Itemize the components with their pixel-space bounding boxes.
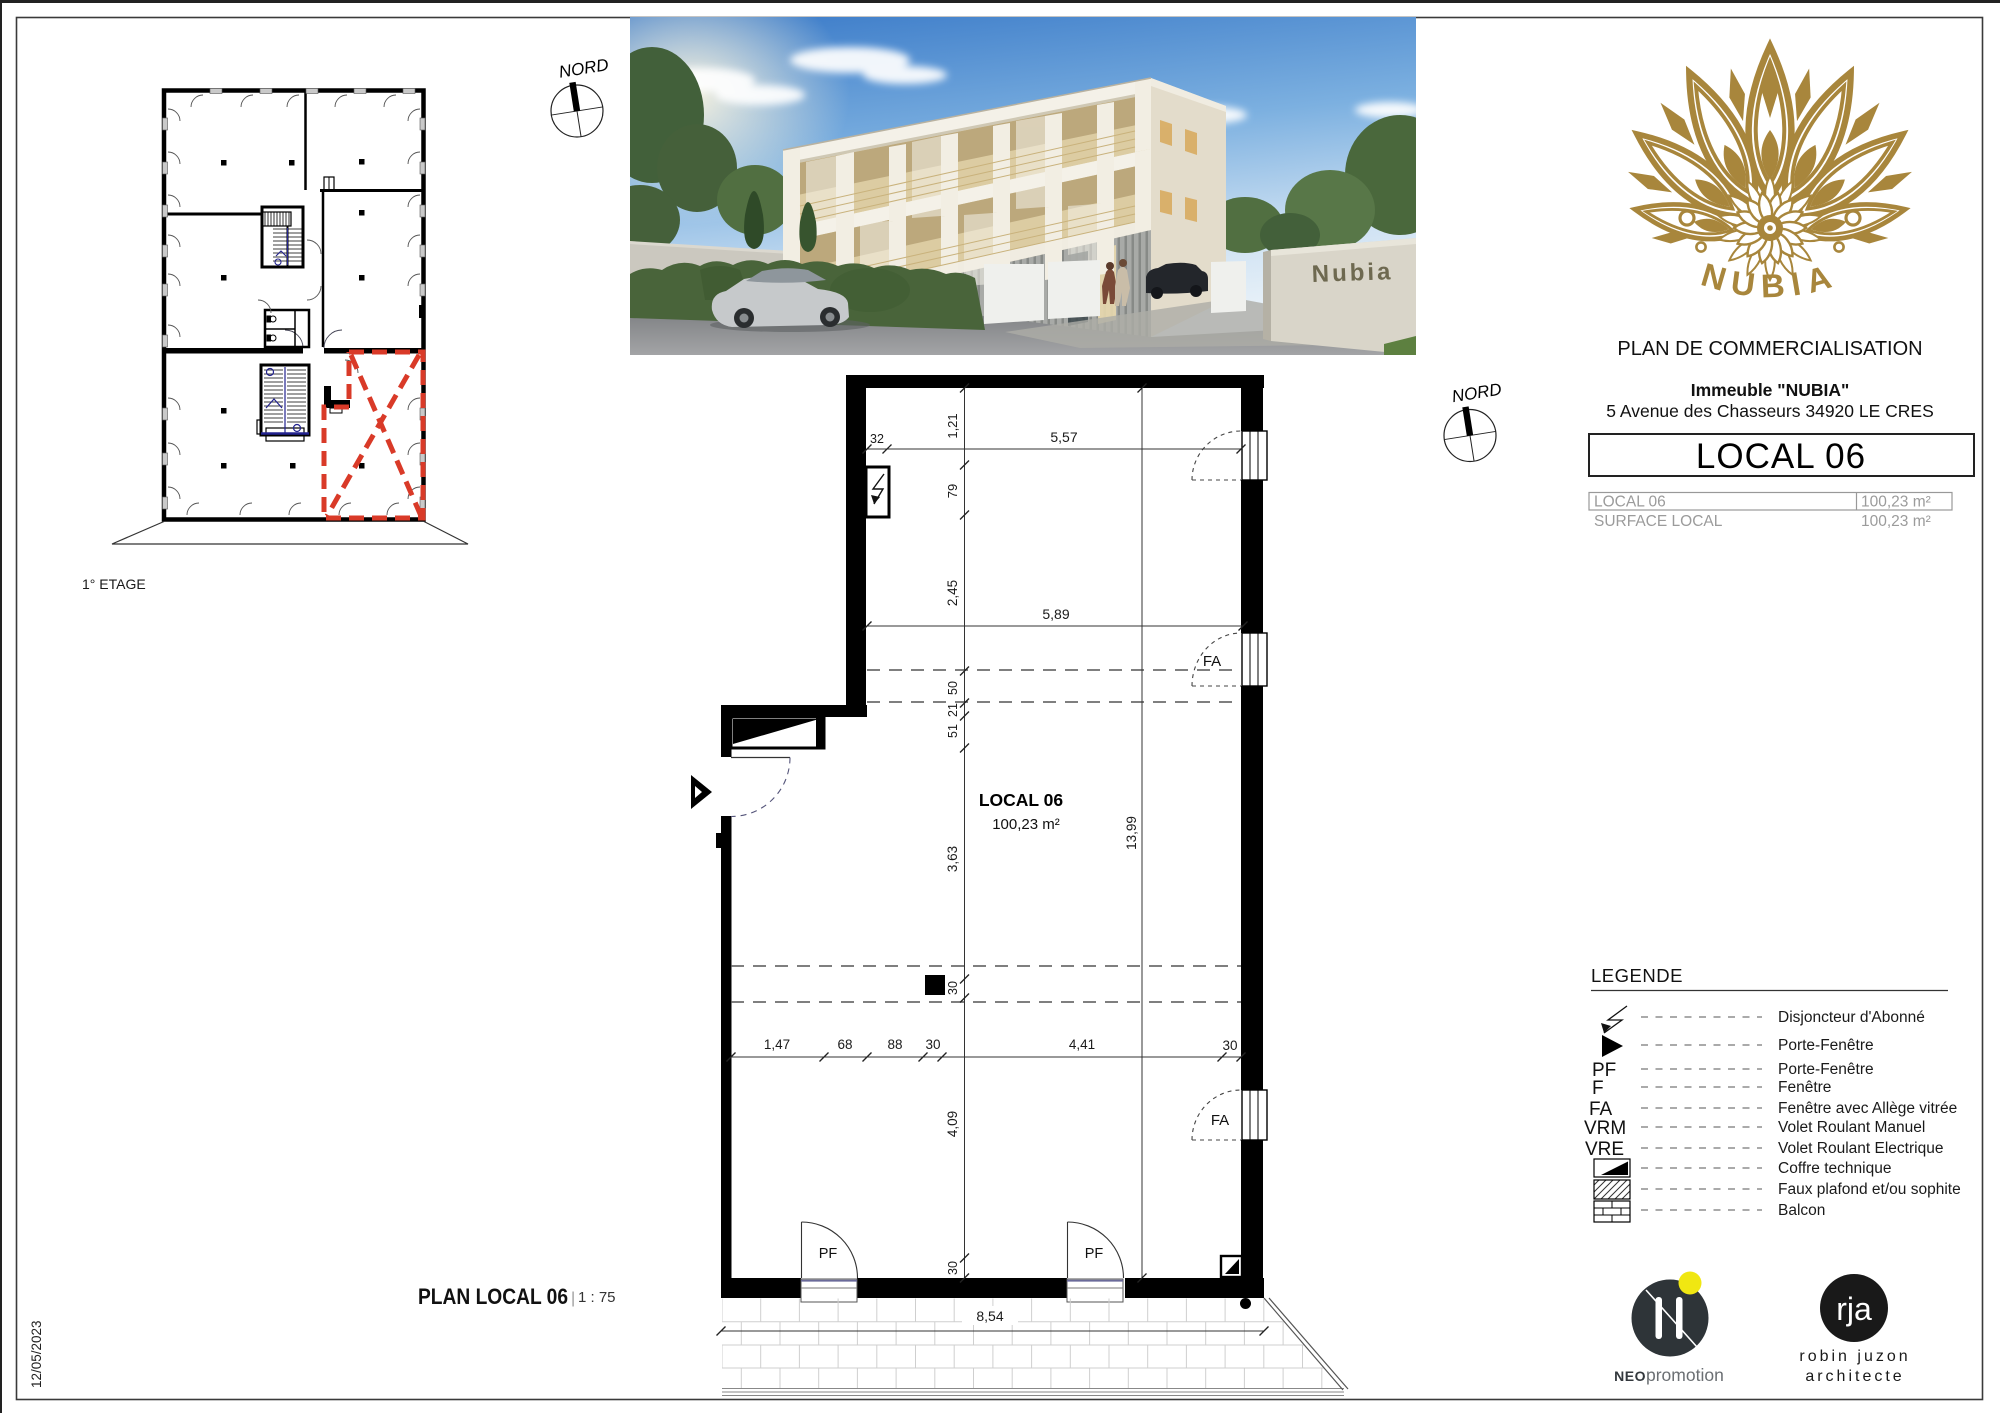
- svg-text:100,23 m²: 100,23 m²: [1861, 494, 1931, 511]
- svg-text:1° ETAGE: 1° ETAGE: [82, 576, 146, 592]
- svg-text:Nubia: Nubia: [1311, 258, 1394, 288]
- svg-text:8,54: 8,54: [976, 1308, 1003, 1324]
- svg-text:Coffre technique: Coffre technique: [1778, 1160, 1891, 1177]
- svg-text:5,89: 5,89: [1042, 606, 1069, 622]
- svg-text:Immeuble "NUBIA": Immeuble "NUBIA": [1691, 380, 1850, 400]
- svg-text:LOCAL 06: LOCAL 06: [1594, 494, 1666, 511]
- svg-text:30: 30: [946, 1261, 960, 1275]
- svg-text:50: 50: [946, 681, 960, 695]
- svg-text:13,99: 13,99: [1124, 816, 1139, 850]
- svg-text:Balcon: Balcon: [1778, 1202, 1825, 1219]
- svg-text:LOCAL 06: LOCAL 06: [979, 790, 1064, 810]
- svg-text:30: 30: [1222, 1038, 1237, 1053]
- svg-text:1 : 75: 1 : 75: [578, 1289, 616, 1306]
- svg-text:F: F: [1592, 1078, 1604, 1099]
- svg-text:PLAN DE COMMERCIALISATION: PLAN DE COMMERCIALISATION: [1617, 338, 1922, 360]
- svg-text:NORD: NORD: [558, 55, 610, 82]
- svg-text:LOCAL 06: LOCAL 06: [1696, 437, 1866, 476]
- svg-text:architecte: architecte: [1805, 1368, 1904, 1385]
- svg-text:NEOpromotion: NEOpromotion: [1614, 1365, 1724, 1385]
- svg-text:51: 51: [946, 724, 960, 738]
- svg-text:32: 32: [870, 432, 884, 446]
- svg-text:PF: PF: [1085, 1246, 1104, 1262]
- svg-text:FA: FA: [1589, 1099, 1613, 1120]
- svg-text:VRM: VRM: [1584, 1118, 1626, 1139]
- svg-text:2,45: 2,45: [945, 580, 960, 606]
- svg-text:1,21: 1,21: [945, 413, 960, 438]
- svg-text:PLAN LOCAL 06: PLAN LOCAL 06: [418, 1284, 568, 1309]
- svg-text:LEGENDE: LEGENDE: [1591, 965, 1683, 986]
- svg-text:PF: PF: [819, 1246, 838, 1262]
- svg-text:SURFACE LOCAL: SURFACE LOCAL: [1594, 513, 1723, 530]
- svg-text:rja: rja: [1836, 1291, 1872, 1327]
- svg-text:Disjoncteur d'Abonné: Disjoncteur d'Abonné: [1778, 1009, 1925, 1026]
- svg-text:68: 68: [837, 1037, 852, 1052]
- svg-text:21: 21: [946, 703, 960, 717]
- svg-text:Volet Roulant Electrique: Volet Roulant Electrique: [1778, 1140, 1943, 1157]
- svg-text:4,09: 4,09: [945, 1111, 960, 1137]
- svg-text:Fenêtre avec Allège vitrée: Fenêtre avec Allège vitrée: [1778, 1100, 1957, 1117]
- svg-text:VRE: VRE: [1585, 1139, 1624, 1160]
- svg-text:Porte-Fenêtre: Porte-Fenêtre: [1778, 1037, 1874, 1054]
- svg-text:88: 88: [887, 1037, 902, 1052]
- svg-text:5 Avenue des Chasseurs 34920 L: 5 Avenue des Chasseurs 34920 LE CRES: [1606, 401, 1934, 421]
- svg-text:Porte-Fenêtre: Porte-Fenêtre: [1778, 1061, 1874, 1078]
- svg-text:30: 30: [925, 1037, 940, 1052]
- svg-text:79: 79: [945, 484, 960, 498]
- svg-text:100,23 m²: 100,23 m²: [1861, 513, 1931, 530]
- svg-text:100,23 m²: 100,23 m²: [992, 816, 1060, 833]
- svg-text:12/05/2023: 12/05/2023: [29, 1320, 44, 1388]
- svg-text:1,47: 1,47: [764, 1037, 790, 1052]
- svg-text:3,63: 3,63: [945, 846, 960, 872]
- svg-text:4,41: 4,41: [1069, 1037, 1095, 1052]
- svg-text:robin juzon: robin juzon: [1799, 1348, 1910, 1365]
- svg-text:Faux plafond et/ou sophite: Faux plafond et/ou sophite: [1778, 1181, 1961, 1198]
- svg-text:FA: FA: [1211, 1112, 1229, 1129]
- svg-text:5,57: 5,57: [1050, 429, 1077, 445]
- svg-text:Volet Roulant Manuel: Volet Roulant Manuel: [1778, 1119, 1925, 1136]
- svg-text:Fenêtre: Fenêtre: [1778, 1079, 1831, 1096]
- svg-text:FA: FA: [1203, 653, 1221, 670]
- svg-text:30: 30: [946, 981, 960, 995]
- svg-text:|: |: [571, 1290, 575, 1307]
